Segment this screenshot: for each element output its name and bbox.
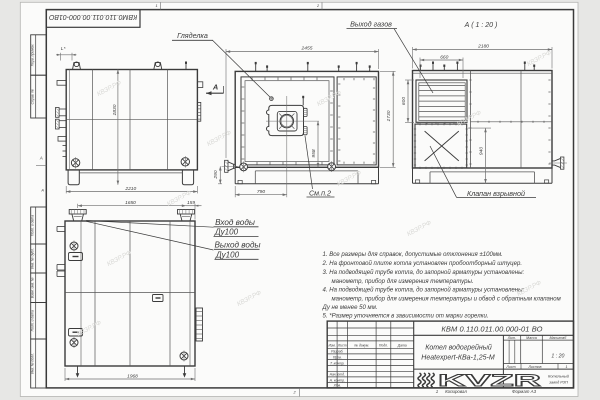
svg-text:Подп. и дата: Подп. и дата <box>31 310 35 331</box>
svg-text:Подп.: Подп. <box>379 344 388 348</box>
svg-text:Н. контр.: Н. контр. <box>330 378 345 382</box>
svg-text:Лист: Лист <box>337 344 347 348</box>
svg-text:1: 1 <box>566 365 568 369</box>
svg-text:Ду100: Ду100 <box>214 228 239 237</box>
svg-text:2210: 2210 <box>124 186 136 192</box>
svg-text:Утв.: Утв. <box>333 384 341 388</box>
svg-text:Нач. отд.: Нач. отд. <box>330 373 345 377</box>
svg-text:600: 600 <box>401 97 407 105</box>
svg-text:№ докум.: № докум. <box>354 344 369 348</box>
svg-text:Формат А3: Формат А3 <box>512 389 537 394</box>
svg-text:Вход воды: Вход воды <box>215 218 255 227</box>
svg-text:См.п.2: См.п.2 <box>309 188 331 197</box>
svg-text:Перв. примен.: Перв. примен. <box>31 44 35 67</box>
svg-text:манометр, прибор для измерения: манометр, прибор для измерения температу… <box>332 279 474 285</box>
svg-text:Пров.: Пров. <box>333 355 342 359</box>
svg-text:Ду100: Ду100 <box>215 250 240 259</box>
svg-text:Листов: Листов <box>527 365 541 369</box>
svg-text:Выход воды: Выход воды <box>214 240 260 249</box>
svg-text:Масса: Масса <box>526 336 537 340</box>
svg-text:1650: 1650 <box>125 200 136 206</box>
svg-text:Клапан взрывной: Клапан взрывной <box>467 189 525 198</box>
svg-text:5. *Размер уточняется в зависи: 5. *Размер уточняется в зависимости от м… <box>323 314 489 320</box>
svg-text:Гляделка: Гляделка <box>177 31 208 40</box>
svg-text:Взам. инв. №: Взам. инв. № <box>31 277 35 298</box>
svg-text:660: 660 <box>440 54 448 60</box>
svg-text:1968: 1968 <box>127 373 138 379</box>
svg-text:940: 940 <box>479 147 485 155</box>
svg-text:3. На подводящей трубе котла,: 3. На подводящей трубе котла, до запорно… <box>323 269 525 276</box>
svg-text:А: А <box>40 189 44 193</box>
svg-text:Ду не менее 50 мм.: Ду не менее 50 мм. <box>322 305 378 311</box>
svg-text:КВМ0.110.011.00.000-01ВО: КВМ0.110.011.00.000-01ВО <box>48 13 137 20</box>
svg-text:Инв. № подл.: Инв. № подл. <box>31 353 35 374</box>
svg-text:А: А <box>212 83 218 92</box>
svg-text:2455: 2455 <box>301 45 313 51</box>
svg-text:манометр, прибор для измерения: манометр, прибор для измерения температу… <box>332 297 562 303</box>
svg-text:1830: 1830 <box>112 104 118 115</box>
svg-text:Лист: Лист <box>505 365 515 369</box>
svg-text:Масштаб: Масштаб <box>550 336 568 340</box>
svg-text:Heatexpert-КВа-1,25-М: Heatexpert-КВа-1,25-М <box>421 355 495 362</box>
svg-text:Разраб.: Разраб. <box>331 350 343 354</box>
svg-text:2180: 2180 <box>477 44 489 50</box>
svg-text:1: 1 <box>155 4 157 8</box>
svg-text:2. На фронтовой плите котла ус: 2. На фронтовой плите котла установлен п… <box>322 260 523 267</box>
svg-text:Выход газов: Выход газов <box>350 20 392 29</box>
svg-text:А: А <box>39 156 43 161</box>
svg-text:Лит.: Лит. <box>507 336 516 340</box>
svg-text:Т. контр.: Т. контр. <box>330 361 345 365</box>
svg-text:159: 159 <box>187 200 195 206</box>
svg-text:L*: L* <box>61 46 66 52</box>
svg-text:Подп. и дата: Подп. и дата <box>31 215 35 236</box>
svg-text:Котел водогрейный: Котел водогрейный <box>425 344 492 352</box>
svg-text:Копировал: Копировал <box>445 389 467 394</box>
svg-text:958: 958 <box>311 149 317 157</box>
svg-text:Дата: Дата <box>397 344 407 348</box>
svg-text:1 : 20: 1 : 20 <box>551 354 564 360</box>
svg-text:KVZR: KVZR <box>438 371 541 390</box>
svg-text:Инв. № дубл.: Инв. № дубл. <box>31 248 35 269</box>
svg-text:Справ. №: Справ. № <box>31 89 35 105</box>
svg-text:1. Все размеры для справок, до: 1. Все размеры для справок, допустимые о… <box>323 252 503 258</box>
svg-text:4. На подводящей трубе котла,: 4. На подводящей трубе котла, до запорно… <box>323 287 525 294</box>
svg-text:290: 290 <box>213 170 219 179</box>
svg-text:А ( 1 : 20 ): А ( 1 : 20 ) <box>464 22 498 29</box>
svg-text:Котельный: Котельный <box>548 375 570 379</box>
svg-text:1730: 1730 <box>386 110 392 121</box>
svg-text:завод РЗП: завод РЗП <box>548 381 568 385</box>
svg-text:790: 790 <box>257 189 265 195</box>
svg-text:Изм.: Изм. <box>328 344 335 348</box>
svg-text:КВМ 0.110.011.00.000-01 ВО: КВМ 0.110.011.00.000-01 ВО <box>441 324 542 333</box>
